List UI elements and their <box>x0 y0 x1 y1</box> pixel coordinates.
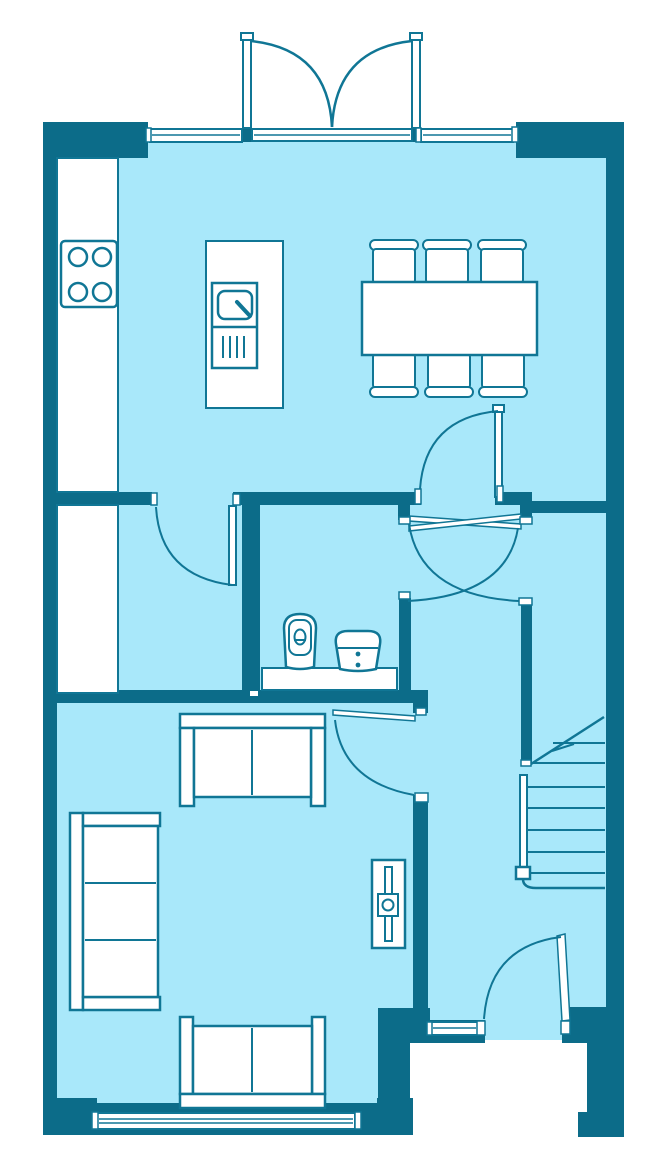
wall-bathroom-left <box>242 492 260 695</box>
wall-top-left-corner <box>43 122 148 158</box>
jamb-window-tr-left <box>416 128 421 142</box>
wall-mid-center <box>233 492 421 505</box>
french-door-swing-left <box>251 41 332 127</box>
jamb-hall-door-left <box>151 493 157 505</box>
jamb-bathroom-wall-end <box>250 691 258 696</box>
jamb-kitchen-door-hinge <box>497 486 503 502</box>
jamb-window-tl-left <box>146 128 151 142</box>
wall-porch-right <box>587 1043 607 1115</box>
chair-seat <box>426 249 468 283</box>
french-door-leaf-left <box>243 39 251 128</box>
wall-right <box>606 122 624 1117</box>
chair-back <box>425 387 473 397</box>
chair-seat <box>481 249 523 283</box>
sofa-bottom-arm-left <box>180 1017 193 1094</box>
jamb-living-door-top <box>416 708 426 715</box>
french-door-hinge-left <box>243 128 252 142</box>
hall-door-leaf <box>229 506 236 585</box>
sofa-bottom-arm-right <box>312 1017 325 1094</box>
tv-bracket <box>378 894 398 916</box>
jamb-stair-wall-end <box>521 760 531 766</box>
sofa-bottom-back <box>180 1094 325 1108</box>
jamb-entrance-hinge <box>561 1021 570 1034</box>
stair-newel <box>516 867 530 879</box>
jamb-window-bottom-right <box>355 1112 361 1129</box>
chair-back <box>479 387 527 397</box>
jamb-lobby-bottom-left <box>399 592 410 599</box>
wall-entry-right-upper <box>567 1007 607 1023</box>
jamb-window-tr-right <box>512 127 518 142</box>
jamb-entrance-strike <box>477 1021 485 1035</box>
wall-se-corner <box>578 1112 624 1137</box>
wall-left <box>43 122 57 1135</box>
chair-back <box>370 387 418 397</box>
jamb-hall-door-hinge <box>233 494 240 505</box>
chair-seat <box>482 354 524 388</box>
wall-bottom-left-corner <box>43 1098 97 1135</box>
french-door-leaf-right <box>412 39 420 128</box>
jamb-kitchen-door-left <box>415 489 421 504</box>
basin-dot-2 <box>356 663 361 668</box>
sofa-top-arm-right <box>311 728 325 806</box>
hall-cupboard <box>57 505 118 693</box>
jamb-lobby-bottom-right <box>519 598 532 605</box>
wall-mid-left <box>43 492 152 505</box>
chair-seat <box>373 354 415 388</box>
jamb-lobby-top-right <box>520 517 532 524</box>
sofa-top-back <box>180 714 325 728</box>
stair-rail <box>520 775 527 868</box>
floor-plan <box>0 0 664 1174</box>
sofa-left-cushions <box>83 826 158 997</box>
wall-stair-side <box>521 605 532 763</box>
bathroom-counter <box>262 668 397 690</box>
jamb-window-front-left <box>427 1022 432 1035</box>
french-door-cap-right <box>410 33 422 40</box>
wall-porch-left <box>378 1043 410 1135</box>
jamb-lobby-top-left <box>399 517 410 524</box>
porch-outside <box>409 1040 589 1138</box>
wall-living-right <box>413 795 428 1008</box>
dining-table <box>362 282 537 355</box>
floor-plan-svg <box>0 0 664 1174</box>
window-bottom <box>97 1113 355 1129</box>
sofa-left-back <box>70 813 83 1010</box>
sofa-left-arm-bottom <box>83 997 160 1010</box>
french-door-cap-left <box>241 33 253 40</box>
chair-seat <box>373 249 415 283</box>
basin-dot-1 <box>356 652 361 657</box>
kitchen-door-leaf <box>495 411 502 497</box>
jamb-window-bottom-left <box>92 1112 98 1129</box>
wall-bathroom-right <box>399 598 411 695</box>
wall-mid-far-right <box>530 501 606 513</box>
kitchen-counter <box>57 158 118 492</box>
french-door-swing-right <box>332 41 412 127</box>
sofa-left-arm-top <box>83 813 160 826</box>
chair-seat <box>428 354 470 388</box>
sofa-top-arm-left <box>180 728 194 806</box>
jamb-living-door-bottom <box>415 793 428 802</box>
